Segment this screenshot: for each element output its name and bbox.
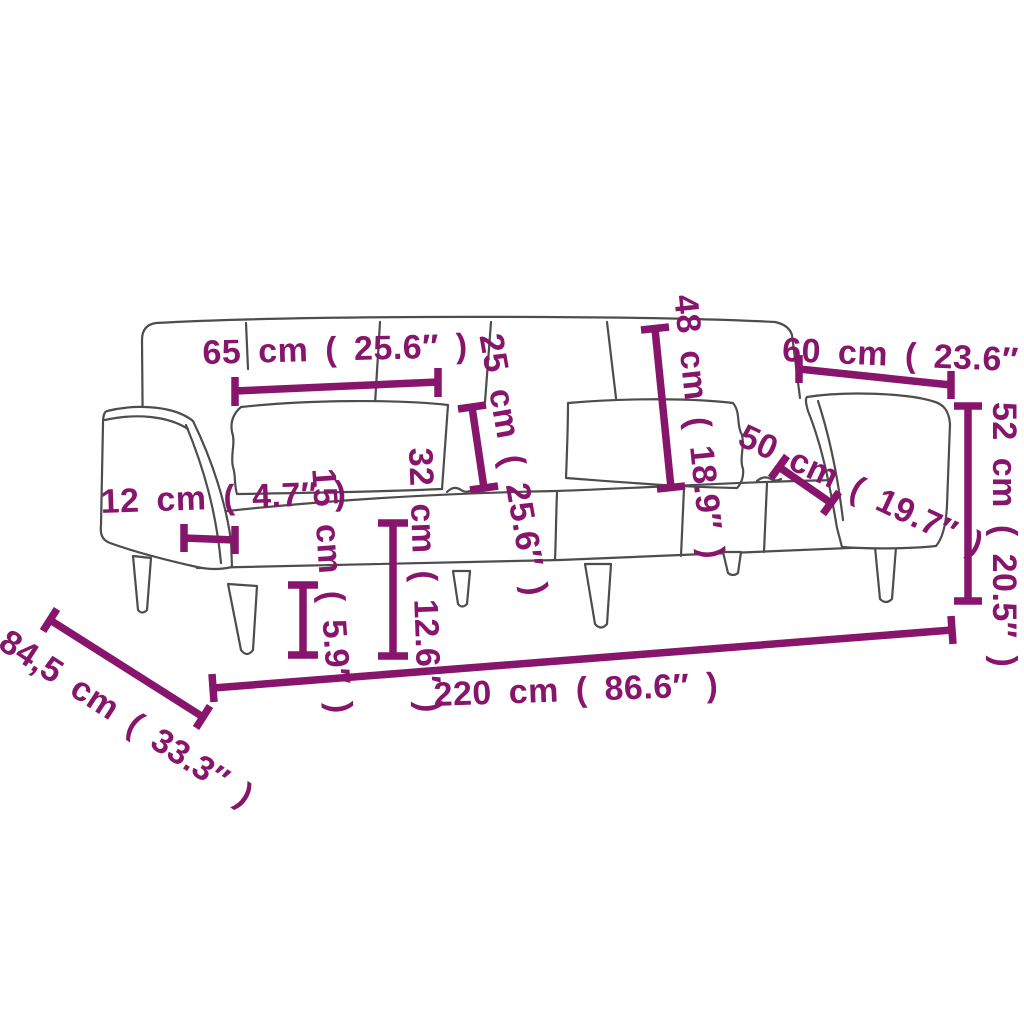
- sofa-leg: [453, 571, 470, 607]
- seat-squiggle: [447, 488, 473, 492]
- dimension-label-cushion-width: 65 cm ( 25.6″ ): [202, 329, 468, 370]
- sofa-leg: [585, 564, 611, 628]
- seat-front-seam: [681, 488, 684, 556]
- sofa-leg: [875, 547, 896, 602]
- dimension-line-armrest-height: [954, 406, 982, 601]
- sofa-leg: [133, 556, 151, 613]
- seat-front-seam: [764, 483, 767, 552]
- sofa-dimension-diagram: 65 cm ( 25.6″ ) 25 cm ( 25.6″ ) 48 cm ( …: [0, 0, 1024, 1024]
- sofa-leg: [228, 584, 257, 654]
- seat-squiggle: [757, 477, 781, 481]
- dimension-label-armrest-height: 52 cm ( 20.5″ ): [987, 402, 1021, 667]
- backrest-seam: [607, 322, 616, 398]
- dimension-label-total-width: 220 cm ( 86.6″ ): [433, 668, 719, 712]
- seat-front-seam: [555, 493, 557, 560]
- dimension-label-seat-height: 32 cm ( 12.6″ ): [403, 447, 446, 713]
